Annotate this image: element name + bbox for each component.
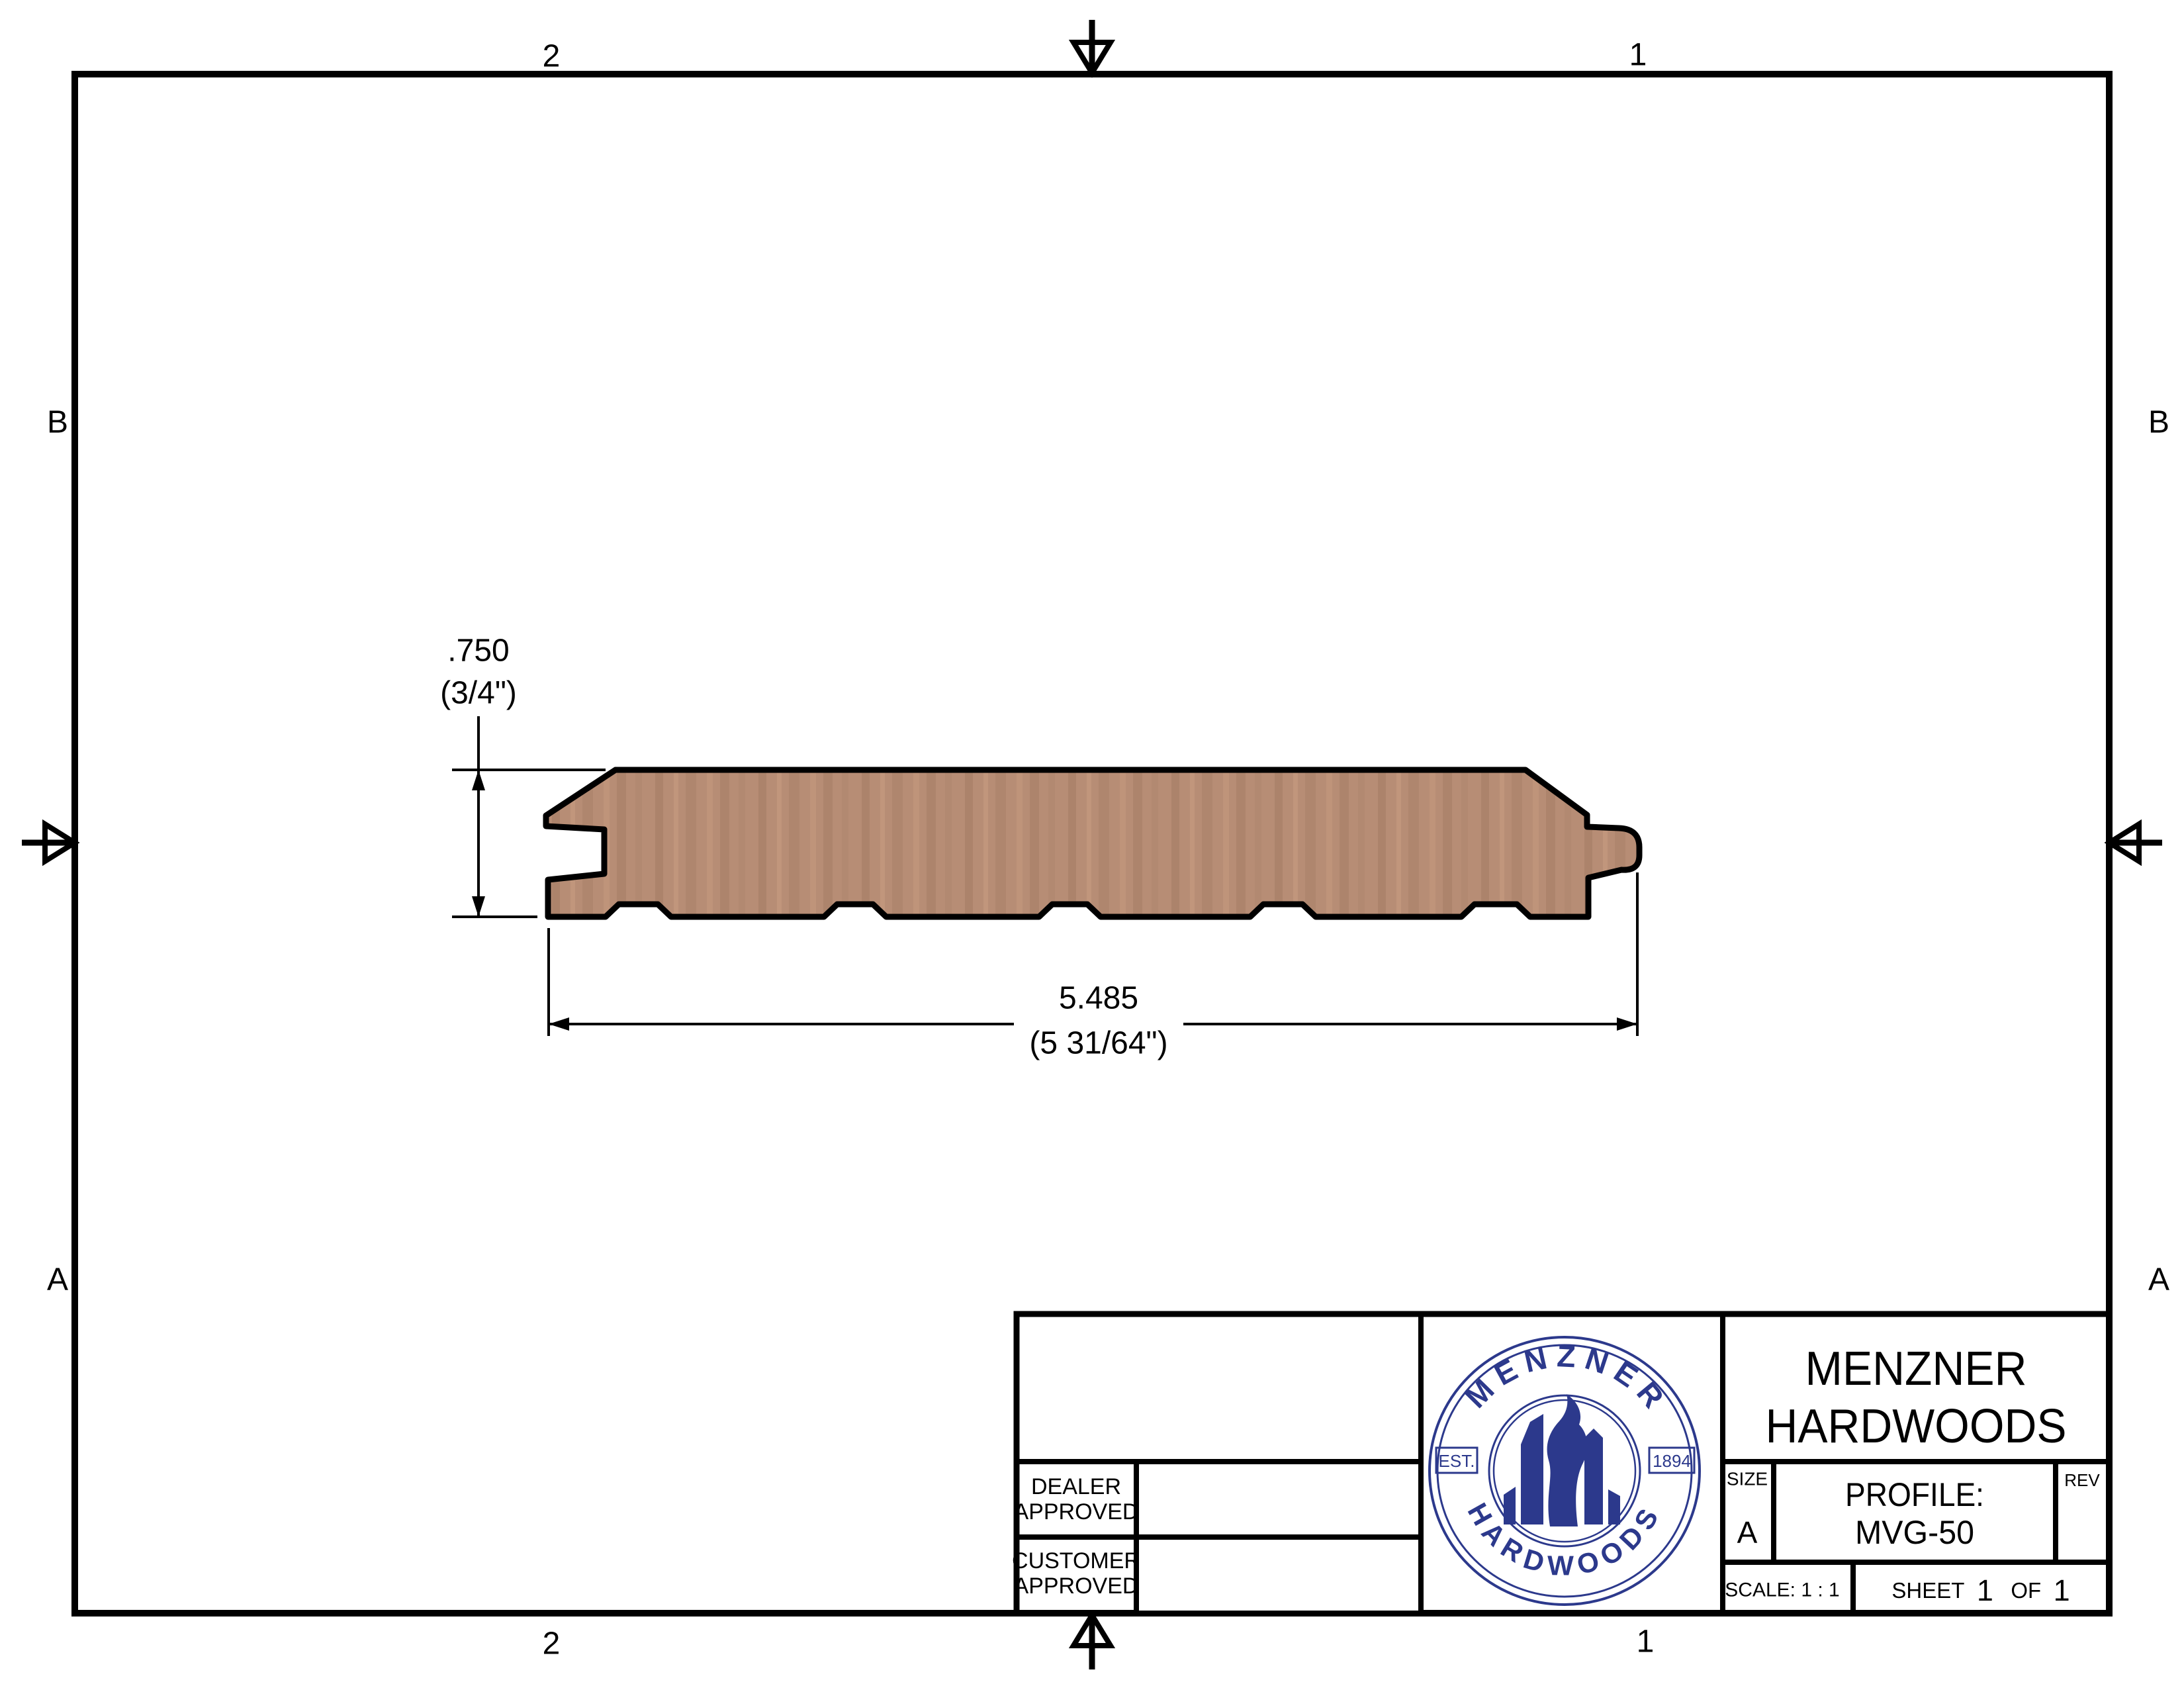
zone-label-top-left: 2 bbox=[543, 39, 561, 74]
zone-label-bottom-right: 1 bbox=[1637, 1624, 1655, 1660]
dim-arrow-left-icon bbox=[549, 1017, 569, 1031]
customer-approved-label-line2: APPROVED bbox=[1014, 1573, 1139, 1599]
zone-label-bottom-left: 2 bbox=[543, 1626, 561, 1662]
fold-mark-bottom-icon bbox=[1073, 1614, 1111, 1669]
zone-label-left-lower: A bbox=[47, 1262, 68, 1297]
dim-arrow-right-icon bbox=[1617, 1017, 1637, 1031]
width-fraction-text: (5 31/64") bbox=[1029, 1026, 1167, 1061]
customer-approved-label-line1: CUSTOMER bbox=[1012, 1548, 1140, 1573]
zone-label-left-upper: B bbox=[47, 405, 68, 440]
fold-mark-top-icon bbox=[1073, 20, 1111, 74]
rev-label: REV bbox=[2064, 1470, 2100, 1490]
company-name-line1: MENZNER bbox=[1805, 1342, 2027, 1395]
logo-year-text: 1894 bbox=[1653, 1451, 1691, 1471]
company-name-line2: HARDWOODS bbox=[1766, 1400, 2067, 1453]
sheet-total: 1 bbox=[2054, 1573, 2070, 1607]
company-logo: MENZNER HARDWOODS EST. 1894 bbox=[1430, 1337, 1700, 1605]
technical-drawing-canvas: 2 1 2 1 B A B A .750 (3/4") bbox=[0, 0, 2184, 1688]
zone-label-right-lower: A bbox=[2148, 1262, 2169, 1297]
size-value: A bbox=[1737, 1515, 1758, 1550]
sheet-number: 1 bbox=[1977, 1573, 1993, 1607]
dealer-signature-field[interactable] bbox=[1139, 1464, 1418, 1534]
sheet-of-label: OF bbox=[2011, 1578, 2041, 1603]
dim-arrow-up-icon bbox=[472, 770, 485, 790]
scale-text: SCALE: 1 : 1 bbox=[1725, 1579, 1839, 1601]
customer-signature-field[interactable] bbox=[1139, 1540, 1418, 1611]
profile-cross-section bbox=[546, 770, 1639, 917]
width-decimal-text: 5.485 bbox=[1059, 981, 1138, 1016]
dealer-approved-label-line1: DEALER bbox=[1031, 1474, 1121, 1499]
profile-value: MVG-50 bbox=[1855, 1514, 1974, 1551]
fold-mark-right-icon bbox=[2109, 824, 2162, 861]
logo-est-text: EST. bbox=[1439, 1451, 1475, 1471]
zone-label-top-right: 1 bbox=[1629, 38, 1647, 73]
drawing-sheet: 2 1 2 1 B A B A .750 (3/4") bbox=[0, 0, 2184, 1688]
dim-arrow-down-icon bbox=[472, 896, 485, 917]
zone-label-right-upper: B bbox=[2148, 405, 2169, 440]
size-label: SIZE bbox=[1727, 1469, 1768, 1489]
thickness-fraction-text: (3/4") bbox=[440, 676, 517, 711]
dealer-approved-label-line2: APPROVED bbox=[1014, 1499, 1139, 1524]
sheet-text: SHEET 1 OF 1 bbox=[1891, 1573, 2070, 1607]
sheet-label: SHEET bbox=[1891, 1578, 1964, 1603]
thickness-decimal-text: .750 bbox=[447, 633, 509, 669]
profile-label: PROFILE: bbox=[1845, 1476, 1984, 1513]
fold-mark-left-icon bbox=[22, 824, 75, 861]
